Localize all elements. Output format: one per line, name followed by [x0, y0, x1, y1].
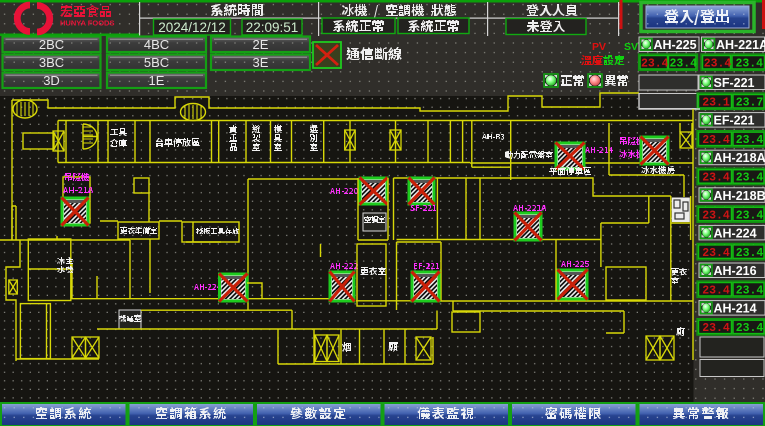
svg-text:AH-218B: AH-218B: [714, 189, 765, 203]
svg-text:23.4: 23.4: [736, 322, 764, 335]
svg-text:EF-221: EF-221: [714, 114, 755, 128]
svg-text:23.4: 23.4: [702, 172, 730, 185]
svg-text:23.4: 23.4: [704, 58, 732, 71]
svg-text:2E: 2E: [253, 37, 269, 52]
svg-text:PV: PV: [592, 41, 606, 53]
svg-text:AH-218A: AH-218A: [714, 151, 765, 165]
svg-text:23.1: 23.1: [702, 97, 730, 110]
svg-text:23.4: 23.4: [702, 247, 730, 260]
svg-text:22:09:51: 22:09:51: [246, 20, 299, 35]
svg-text:3E: 3E: [253, 55, 269, 70]
svg-text:1E: 1E: [149, 73, 165, 88]
svg-text:23.4: 23.4: [702, 209, 730, 222]
svg-text:23.4: 23.4: [736, 209, 764, 222]
svg-text:2024/12/12: 2024/12/12: [158, 20, 226, 35]
svg-text:HUNYA FOODS: HUNYA FOODS: [60, 19, 114, 28]
svg-text:23.7: 23.7: [736, 97, 764, 110]
svg-text:23.4: 23.4: [736, 172, 764, 185]
svg-text:23.4: 23.4: [702, 322, 730, 335]
svg-text:23.4: 23.4: [641, 58, 669, 71]
svg-text:AH-214: AH-214: [714, 302, 757, 316]
svg-text:23.4: 23.4: [735, 58, 763, 71]
svg-text:AH-225: AH-225: [654, 38, 697, 52]
svg-text:3D: 3D: [43, 73, 60, 88]
svg-text:23.4: 23.4: [736, 285, 764, 298]
svg-text:SF-221: SF-221: [714, 76, 755, 90]
svg-text:AH-221A: AH-221A: [716, 38, 765, 52]
svg-text:3BC: 3BC: [39, 55, 64, 70]
svg-text:23.4: 23.4: [669, 58, 697, 71]
svg-text:23.4: 23.4: [702, 134, 730, 147]
svg-text:AH-224: AH-224: [714, 226, 757, 240]
svg-text:23.4: 23.4: [736, 247, 764, 260]
svg-text:5BC: 5BC: [144, 55, 169, 70]
svg-text:AH-216: AH-216: [714, 264, 757, 278]
svg-text:23.4: 23.4: [736, 134, 764, 147]
svg-text:23.4: 23.4: [702, 285, 730, 298]
svg-text:2BC: 2BC: [39, 37, 64, 52]
svg-text:SV: SV: [624, 41, 638, 53]
svg-text:4BC: 4BC: [144, 37, 169, 52]
